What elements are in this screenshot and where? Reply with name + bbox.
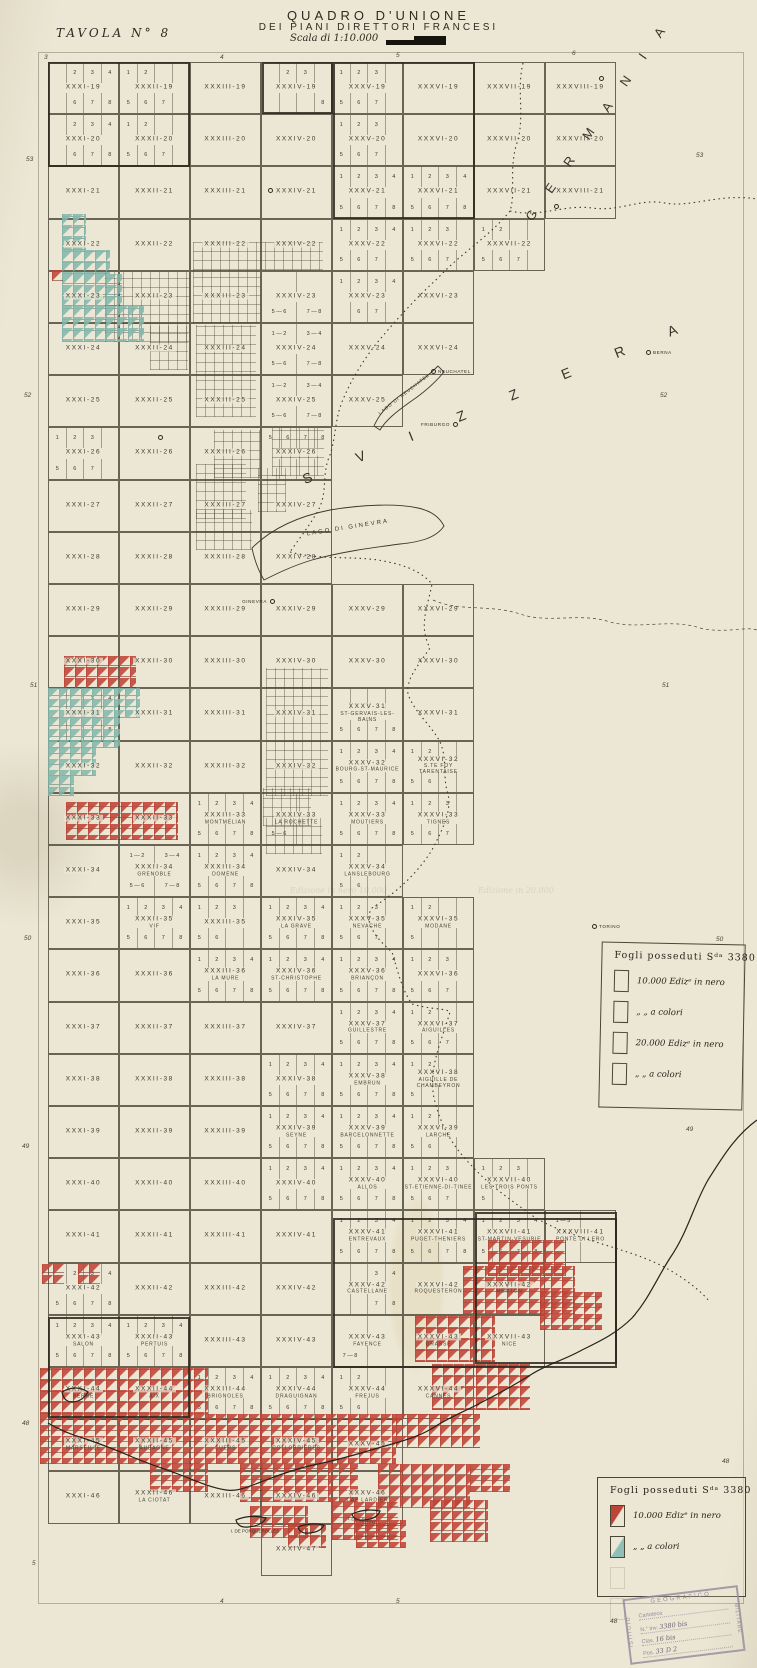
subsheet-number: 7 [367,772,385,792]
sheet-label: XXXIII-39 [191,1128,260,1136]
subsheet-number: 7 [367,250,385,270]
subsheet-number: 8 [243,824,261,844]
legend-entry-text: 20.000 Edizᵉ in nero [636,1038,724,1050]
sheet-label: XXXIV-24 [262,345,331,353]
subsheet-number: 6 [208,928,226,948]
graticule-number: 4 [220,1598,224,1605]
grid-cell-XXXIV-24: 1 — 23 — 45 — 67 — 8XXXIV-24 [261,323,332,375]
subsheet-number: 2 [350,272,368,292]
grid-cell-XXXIII-33: 12345678XXXIII-33MONTMÉLIAN [190,793,261,845]
possessed-red-hatch [42,1264,64,1284]
sheet-place-name: CAP LARDIER [333,1498,402,1504]
subsheet-number: 8 [314,981,332,1001]
sheet-label: XXXV-44FREJUS [333,1386,402,1400]
subsheet-number: 7 [154,928,172,948]
grid-cell-XXXII-22: XXXII-22 [119,219,190,271]
subsheet-numbers: 5678 [333,1189,402,1209]
subsheet-number: 7 [296,981,314,1001]
subsheet-number [225,928,243,948]
subsheet-number: 5 [333,928,350,948]
subsheet-numbers: 1234 [262,1055,331,1075]
subsheet-number [438,1137,456,1157]
legend-title: Fogli posseduti Sᵈᵃ 3380 [614,950,744,964]
grid-cell-XXXIV-37: XXXIV-37 [261,1002,332,1054]
sheet-label: XXXIII-19 [191,84,260,92]
subsheet-number: 1 [262,1159,279,1179]
sheet-label: XXXI-36 [49,971,118,979]
grid-cell-XXXII-27: XXXII-27 [119,480,190,532]
subsheet-number: 5 — 6 [120,876,154,896]
legend-upper: Fogli posseduti Sᵈᵃ 3380 10.000 Edizᵉ in… [598,942,745,1111]
subsheet-number: 5 [191,928,208,948]
sheet-label: XXXIV-39SEYNE [262,1125,331,1139]
grid-cell-XXXV-31: 5678XXXV-31ST-GERVAIS-LES-BAINS [332,688,403,740]
scale-bar [386,40,414,45]
sheet-label: XXXIII-21 [191,188,260,196]
sheet-label: XXXIV-29 [262,606,331,614]
subsheet-number: 4 [385,272,403,292]
sheet-label: XXXI-39 [49,1128,118,1136]
sheet-label: XXXI-28 [49,554,118,562]
subsheet-numbers [262,272,331,292]
grid-cell-XXXII-38: XXXII-38 [119,1054,190,1106]
subsheet-number: 6 [66,1294,84,1314]
subsheet-number: 1 [191,898,208,918]
graticule-number: 53 [696,152,703,159]
subsheet-number: 6 [421,250,439,270]
subsheet-number: 7 [367,1189,385,1209]
sheet-label: XXXVI-24 [404,345,473,353]
grid-cell-XXXVI-39: 1256XXXVI-39LARCHE [403,1106,474,1158]
city-label: FRIBURGO [421,422,450,427]
sheet-label: XXXV-24 [333,345,402,353]
subsheet-number: 1 [404,950,421,970]
sheet-label: XXXIII-30 [191,658,260,666]
archive-stamp: GEOGRAFICO ISTITUTO MILITARE Cartoteca N… [622,1585,745,1665]
grid-cell-XXXIII-19: XXXIII-19 [190,62,261,114]
subsheet-numbers: 5 — 67 — 8 [120,876,189,896]
subsheet-number: 4 [101,1264,119,1284]
subsheet-number: 3 [296,1159,314,1179]
sheet-label: XXXIV-31 [262,710,331,718]
subsheet-number: 6 [208,981,226,1001]
subsheet-numbers: 5678 [333,1085,402,1105]
sheet-label: XXXIII-23 [191,293,260,301]
subsheet-number: 6 [208,824,226,844]
heavy-block-outline [262,62,333,114]
subsheet-numbers: 567 [404,1189,473,1209]
sheet-label: XXXI-41 [49,1232,118,1240]
subsheet-number: 5 [262,981,279,1001]
grid-cell-XXXIV-36: 12345678XXXIV-36ST-CHRISTOPHE [261,949,332,1001]
grid-cell-XXXVI-37: 12567XXXVI-37AIGUILLES [403,1002,474,1054]
grid-cell-XXXII-40: XXXII-40 [119,1158,190,1210]
sheet-label: XXXIV-36ST-CHRISTOPHE [262,968,331,982]
sheet-label: XXXIV-20 [262,136,331,144]
sheet-place-name: AIGUILLES [404,1028,473,1034]
subsheet-number: 7 [367,1137,385,1157]
sheet-label: XXXV-33MOUTIERS [333,811,402,825]
grid-cell-XXXVI-29: XXXVI-29 [403,584,474,636]
grid-cell-XXXI-26: 123567XXXI-26 [48,427,119,479]
subsheet-number: 3 [438,220,456,240]
subsheet-number: 6 [350,824,368,844]
possessed-red-hatch [430,1500,488,1542]
grid-cell-XXXI-36: XXXI-36 [48,949,119,1001]
subsheet-number: 7 — 8 [154,876,189,896]
red-swatch [610,1505,625,1527]
sheet-label: XXXIII-43 [191,1337,260,1345]
subsheet-number: 5 [191,981,208,1001]
subsheet-numbers: 567 [404,981,473,1001]
sheet-label: XXXIII-27 [191,501,260,509]
graticule-number: 51 [662,682,669,689]
sheet-place-name: S.TE FOY TARENTAISE [404,764,473,776]
legend-lower: Fogli posseduti Sᵈᵃ 3380 10.000 Edizᵉ in… [597,1477,746,1597]
sheet-label: XXXIV-32 [262,762,331,770]
sheet-label: XXXIII-42 [191,1284,260,1292]
legend-row: „ „ a colori [612,1063,742,1088]
sheet-label: XXXII-36 [120,971,189,979]
sheet-label: XXXVII-19 [475,84,544,92]
sheet-label: XXXII-37 [120,1023,189,1031]
sheet-label: XXXVI-31 [404,710,473,718]
subsheet-number [456,824,474,844]
subsheet-number: 8 [385,772,403,792]
grid-cell-XXXI-46: XXXI-46 [48,1471,119,1523]
subsheet-numbers: 123 [49,428,118,448]
sheet-place-name: SEYNE [262,1132,331,1138]
subsheet-number: 6 [350,928,368,948]
subsheet-number: 6 [279,1085,297,1105]
subsheet-number: 1 [475,220,492,240]
grid-cell-XXXV-32: 12345678XXXV-32BOURG-ST-MAURICE [332,741,403,793]
subsheet-number: 5 [404,981,421,1001]
legend-entry-text: 10.000 Edizᵉ in nero [633,1511,721,1521]
subsheet-number: 5 — 6 [262,302,296,322]
sheet-label: XXXV-23 [333,293,402,301]
subsheet-numbers: 123 [191,898,260,918]
grid-cell-XXXIII-34: 12345678XXXIII-34DOMÈNE [190,845,261,897]
city-label: BERNA [653,350,672,355]
legend-row: „ „ a colori [610,1536,745,1558]
town-dot [599,76,604,81]
subsheet-numbers: 5678 [262,1137,331,1157]
sheet-place-name: AUBAGNE [120,1445,189,1451]
heavy-block-outline [475,1212,617,1364]
grid-cell-XXXVI-23: XXXVI-23 [403,271,474,323]
subsheet-number: 8 [314,1137,332,1157]
sheet-place-name: LA MURE [191,976,260,982]
sheet-label: XXXIV-47 [262,1545,331,1553]
sheet-label: XXXV-38EMBRUN [333,1072,402,1086]
subsheet-number: 7 [438,824,456,844]
subsheet-number: 7 [225,981,243,1001]
grid-cell-XXXII-41: XXXII-41 [119,1210,190,1262]
legend-row: 10.000 Edizᵉ in nero [610,1505,745,1527]
stamp-text: ISTITUTO [626,1616,636,1647]
grid-cell-XXXII-21: XXXII-21 [119,166,190,218]
sheet-label: XXXIII-37 [191,1023,260,1031]
grid-cell-XXXV-35: 123567XXXV-35NEVACHE [332,897,403,949]
sheet-label: XXXIV-44DRAGUIGNAN [262,1386,331,1400]
possessed-red-hatch [52,270,63,281]
sheet-place-name: MARSEILLE [49,1445,118,1451]
sheet-label: XXXII-33 [120,815,189,823]
subsheet-number [456,928,474,948]
sheet-label: XXXIV-28 [262,554,331,562]
region-label: I. DE PORQUEROLLES [231,1529,280,1534]
subsheet-number: 2 [350,220,368,240]
subsheet-number: 5 [333,1189,350,1209]
subsheet-number: 5 [333,981,350,1001]
sheet-label: XXXIV-23 [262,293,331,301]
subsheet-number: 1 [333,220,350,240]
subsheet-number: 5 [404,824,421,844]
subsheet-number: 8 [314,1189,332,1209]
subsheet-number [456,981,474,1001]
subsheet-number: 1 [49,428,66,448]
grid-cell-XXXIII-41: XXXIII-41 [190,1210,261,1262]
grid-cell-XXXII-39: XXXII-39 [119,1106,190,1158]
subsheet-number [262,272,296,292]
grid-cell-XXXIII-37: XXXIII-37 [190,1002,261,1054]
subsheet-number: 3 [83,428,101,448]
town-dot [268,188,273,193]
sheet-label: XXXIII-29 [191,606,260,614]
sheet-label: XXXIV-42 [262,1284,331,1292]
sheet-label: XXXV-32BOURG-ST-MAURICE [333,759,402,773]
heavy-block-outline [48,1317,190,1418]
subsheet-number: 3 — 4 [296,324,331,344]
subsheet-numbers: 67 [333,302,402,322]
sheet-label: XXXII-25 [120,397,189,405]
sheet-place-name: DRAGUIGNAN [262,1393,331,1399]
subsheet-number [509,220,527,240]
subsheet-number: 5 [404,250,421,270]
grid-cell-XXXII-25: XXXII-25 [119,375,190,427]
legend-row: 10.000 Edizᵉ in nero [614,970,744,995]
sheet-label: XXXI-25 [49,397,118,405]
subsheet-number: 5 [333,772,350,792]
subsheet-numbers: 567 [404,824,473,844]
grid-cell-XXXVI-32: 1256XXXVI-32S.TE FOY TARENTAISE [403,741,474,793]
subsheet-number: 5 [333,824,350,844]
graticule-number: 5 [396,1598,400,1605]
sheet-place-name: AIGUILLE DE CHAMBEYRON [404,1077,473,1089]
grid-cell-XXXVI-31: XXXVI-31 [403,688,474,740]
subsheet-number: 6 [492,250,510,270]
city-label: GINEVRA [242,599,267,604]
grid-cell-XXXV-23: 123467XXXV-23 [332,271,403,323]
subsheet-number [527,250,545,270]
sheet-label: XXXIII-20 [191,136,260,144]
subsheet-numbers: 567 [333,928,402,948]
graticule-number: 4 [220,54,224,61]
sheet-label: XXXI-21 [49,188,118,196]
sheet-label: XXXII-30 [120,658,189,666]
subsheet-number: 5 [404,1137,421,1157]
subsheet-number: 3 [225,898,243,918]
grid-cell-XXXIV-42: XXXIV-42 [261,1263,332,1315]
sheet-label: XXXI-30 [49,658,118,666]
scale-bar [414,36,446,45]
subsheet-number: 7 [296,1085,314,1105]
subsheet-number: 6 [279,1137,297,1157]
subsheet-number: 8 [385,824,403,844]
sheet-place-name: CANNES [404,1393,473,1399]
sheet-place-name: MOUTIERS [333,819,402,825]
legend-rows: 10.000 Edizᵉ in nero„ „ a colori20.000 E… [600,970,744,1088]
sheet-label: XXXV-35NEVACHE [333,916,402,930]
sheet-place-name: LANSLEBOURG [333,871,402,877]
subsheet-number [456,1033,474,1053]
subsheet-numbers: 56 [191,928,260,948]
subsheet-number: 6 [350,1137,368,1157]
subsheet-number: 5 [49,1294,66,1314]
city-dot [431,369,436,374]
grid-cell-XXXIII-43: XXXIII-43 [190,1315,261,1367]
sheet-label: XXXVI-22 [404,240,473,248]
subsheet-number: 6 [66,459,84,479]
grid-cell-XXXVI-30: XXXVI-30 [403,636,474,688]
subsheet-numbers: 567 [475,250,544,270]
grid-cell-XXXV-24: XXXV-24 [332,323,403,375]
grid-cell-XXXII-37: XXXII-37 [119,1002,190,1054]
sheet-label: XXXIII-40 [191,1180,260,1188]
city-dot [453,422,458,427]
subsheet-number: 6 [350,302,368,322]
subsheet-number: 6 [350,981,368,1001]
subsheet-number [385,876,403,896]
sheet-label: XXXIII-28 [191,554,260,562]
graticule-number: 50 [716,936,723,943]
sheet-label: XXXI-24 [49,345,118,353]
subsheet-number [101,428,119,448]
subsheet-number: 8 [385,1033,403,1053]
legend-entry-text: „ „ a colori [633,1542,679,1552]
subsheet-number: 7 [367,981,385,1001]
subsheet-number: 5 [191,824,208,844]
grid-cell-XXXV-22: 1234567XXXV-22 [332,219,403,271]
grid-cell-XXXIV-28: XXXIV-28 [261,532,332,584]
grid-cell-XXXI-28: XXXI-28 [48,532,119,584]
possessed-red-hatch [470,1464,510,1492]
subsheet-number: 3 — 4 [296,376,331,396]
heavy-block-outline [333,62,475,219]
sheet-label: XXXIII-35 [191,919,260,927]
sheet-label: XXXV-36BRIANÇON [333,968,402,982]
graticule-number: 52 [660,392,667,399]
subsheet-numbers: 5678 [191,876,260,896]
fine-subsheet-grid [266,668,328,796]
grid-cell-XXXII-35: 12345678XXXII-35VIF [119,897,190,949]
sheet-label: XXXVII-40LES TROIS PONTS [475,1177,544,1191]
grid-cell-XXXIV-44: 12345678XXXIV-44DRAGUIGNAN [261,1367,332,1419]
sheet-label: XXXI-32 [49,762,118,770]
subsheet-number [456,250,474,270]
sheet-label: XXXIII-46 [191,1493,260,1501]
subsheet-number: 6 [279,1189,297,1209]
legend-row: „ „ a colori [613,1001,743,1026]
subsheet-number: 5 [333,1085,350,1105]
grid-cell-XXXIV-20: XXXIV-20 [261,114,332,166]
subsheet-number: 5 [333,250,350,270]
grid-cell-XXXII-34: 1 — 23 — 45 — 67 — 8XXXII-34GRENOBLE [119,845,190,897]
sheet-label: XXXVII-22 [475,240,544,248]
sheet-label: XXXIII-33MONTMÉLIAN [191,811,260,825]
sheet-place-name: MONTMÉLIAN [191,819,260,825]
grid-cell-XXXVII-22: 12567XXXVII-22 [474,219,545,271]
subsheet-numbers: 1234 [333,220,402,240]
subsheet-number: 7 [296,1189,314,1209]
sheet-label: XXXVI-33TIGNES [404,811,473,825]
grid-cell-XXXVII-19: XXXVII-19 [474,62,545,114]
sheet-label: XXXII-32 [120,762,189,770]
grid-cell-XXXIV-29: XXXIV-29 [261,584,332,636]
sheet-label: XXXIV-25 [262,397,331,405]
grid-cell-XXXIV-35: 12345678XXXIV-35LA GRAVE [261,897,332,949]
sheet-label: XXXIII-36LA MURE [191,968,260,982]
sheet-label: XXXII-27 [120,501,189,509]
grid-cell-XXXI-35: XXXI-35 [48,897,119,949]
erased-text: Edizione in 20.000 [478,886,554,895]
subsheet-number: 1 [333,272,350,292]
fine-subsheet-grid [196,510,252,550]
grid-cell-XXXV-40: 12345678XXXV-40ALLOS [332,1158,403,1210]
sheet-label: XXXVII-20 [475,136,544,144]
sheet-place-name: ST-CHRISTOPHE [262,976,331,982]
subsheet-numbers: 5 — 67 — 8 [262,406,331,426]
subsheet-number: 5 [262,1189,279,1209]
sheet-place-name: FREJUS [333,1393,402,1399]
grid-cell-XXXIII-31: XXXIII-31 [190,688,261,740]
sheet-label: XXXIV-41 [262,1232,331,1240]
sheet-label: XXXI-33 [49,815,118,823]
subsheet-number: 8 [172,928,190,948]
grid-cell-XXXV-30: XXXV-30 [332,636,403,688]
legend-row: 20.000 Edizᵉ in nero [612,1032,742,1057]
grid-cell-XXXIV-23: 5 — 67 — 8XXXIV-23 [261,271,332,323]
map-sheet: TAVOLA N° 8 QUADRO D'UNIONE DEI PIANI DI… [0,0,757,1668]
subsheet-number: 5 [49,459,66,479]
subsheet-numbers: 1234 [333,272,402,292]
sheet-label: XXXV-46CAP LARDIER [333,1490,402,1504]
possessed-red-hatch [288,1524,326,1548]
sheet-label: XXXIV-34 [262,867,331,875]
subsheet-numbers: 5 — 67 — 8 [262,354,331,374]
subsheet-number: 6 [350,1033,368,1053]
sheet-label: XXXIII-31 [191,710,260,718]
sheet-place-name: VIF [120,923,189,929]
sheet-place-name: BRIANÇON [333,976,402,982]
grid-cell-XXXVI-38: 125XXXVI-38AIGUILLE DE CHAMBEYRON [403,1054,474,1106]
sheet-label: XXXII-29 [120,606,189,614]
subsheet-number: 7 [83,1294,101,1314]
subsheet-number: 2 [66,428,84,448]
subsheet-number [492,1189,510,1209]
subsheet-number: 2 [279,1159,297,1179]
subsheet-number: 7 [296,928,314,948]
subsheet-number: 7 [438,250,456,270]
subsheet-number: 8 [101,1294,119,1314]
grid-cell-XXXIV-25: 1 — 23 — 45 — 67 — 8XXXIV-25 [261,375,332,427]
sheet-label: XXXVI-38AIGUILLE DE CHAMBEYRON [404,1069,473,1089]
legend-entry-text: „ „ a colori [636,1007,683,1018]
grid-cell-XXXV-44: 1256XXXV-44FREJUS [332,1367,403,1419]
graticule-number: 3 [44,54,48,61]
sheet-label: XXXIII-26 [191,449,260,457]
